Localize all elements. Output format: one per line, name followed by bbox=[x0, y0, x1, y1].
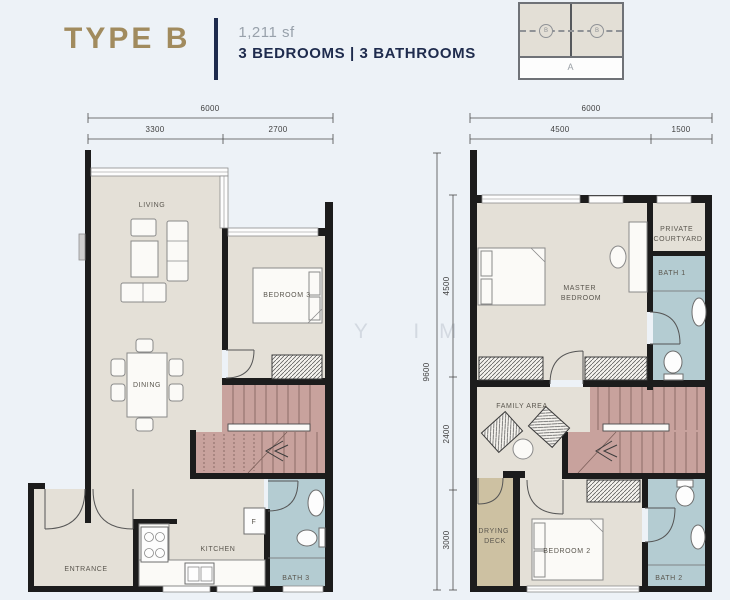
stair-rail bbox=[228, 424, 310, 431]
wardrobe-icon bbox=[479, 357, 543, 380]
window bbox=[217, 586, 253, 592]
desk-icon bbox=[629, 222, 647, 292]
basin-icon bbox=[691, 525, 705, 549]
pillow-icon bbox=[481, 279, 492, 304]
fridge-label: F bbox=[252, 519, 257, 526]
dining-label: DINING bbox=[133, 382, 161, 389]
window bbox=[283, 586, 323, 592]
pillow-icon bbox=[534, 523, 545, 549]
sofa-icon bbox=[121, 283, 166, 302]
chair-icon bbox=[610, 246, 626, 268]
wardrobe-icon bbox=[587, 480, 640, 502]
window bbox=[657, 196, 691, 203]
wardrobe-icon bbox=[585, 357, 647, 380]
bath3-label: BATH 3 bbox=[282, 575, 310, 582]
toilet-icon bbox=[297, 530, 317, 546]
dim-total-height: 9600 bbox=[422, 362, 431, 381]
toilet-tank bbox=[664, 374, 683, 380]
dim-total-width: 6000 bbox=[201, 104, 220, 113]
lower-floor-plan: 6000 3300 2700 bbox=[28, 104, 333, 592]
chair-icon bbox=[169, 384, 183, 401]
basin-icon bbox=[308, 490, 324, 516]
coffee-table-icon bbox=[131, 241, 158, 277]
dim-total-width: 6000 bbox=[582, 104, 601, 113]
upper-floor-plan: 6000 4500 1500 9600 4500 2400 3000 bbox=[422, 104, 712, 592]
dim-segment: 1500 bbox=[672, 125, 691, 134]
floor-plans: 6000 3300 2700 bbox=[0, 0, 730, 600]
dim-segment: 3000 bbox=[442, 530, 451, 549]
dim-segment: 3300 bbox=[146, 125, 165, 134]
dim-segment: 2400 bbox=[442, 424, 451, 443]
dim-segment: 4500 bbox=[442, 276, 451, 295]
chair-icon bbox=[136, 339, 153, 352]
side-table-icon bbox=[513, 439, 533, 459]
chair-icon bbox=[136, 418, 153, 431]
bath1-label: BATH 1 bbox=[658, 270, 686, 277]
window bbox=[589, 196, 623, 203]
entrance-label: ENTRANCE bbox=[64, 566, 107, 573]
toilet-icon bbox=[664, 351, 682, 373]
basin-icon bbox=[692, 298, 706, 326]
armchair-icon bbox=[131, 219, 156, 236]
kitchen-label: KITCHEN bbox=[201, 546, 236, 553]
wardrobe-icon bbox=[272, 355, 322, 379]
lower-dimensions: 6000 3300 2700 bbox=[88, 104, 333, 144]
chair-icon bbox=[111, 359, 125, 376]
pillow-icon bbox=[481, 251, 492, 276]
sofa-icon bbox=[167, 221, 188, 281]
stove-icon bbox=[141, 527, 168, 562]
window bbox=[163, 586, 210, 592]
living-label: LIVING bbox=[139, 202, 166, 209]
family-area-label: FAMILY AREA bbox=[496, 403, 547, 410]
stairs-lower-flight bbox=[568, 432, 705, 473]
chair-icon bbox=[111, 384, 125, 401]
stair-rail bbox=[603, 424, 669, 431]
dim-segment: 4500 bbox=[551, 125, 570, 134]
bath2-label: BATH 2 bbox=[655, 575, 683, 582]
bedroom3-label: BEDROOM 3 bbox=[263, 292, 310, 299]
wall-pilaster bbox=[79, 234, 85, 260]
toilet-tank bbox=[319, 528, 325, 547]
toilet-icon bbox=[676, 486, 694, 506]
chair-icon bbox=[169, 359, 183, 376]
dim-segment: 2700 bbox=[269, 125, 288, 134]
bedroom2-label: BEDROOM 2 bbox=[543, 548, 590, 555]
